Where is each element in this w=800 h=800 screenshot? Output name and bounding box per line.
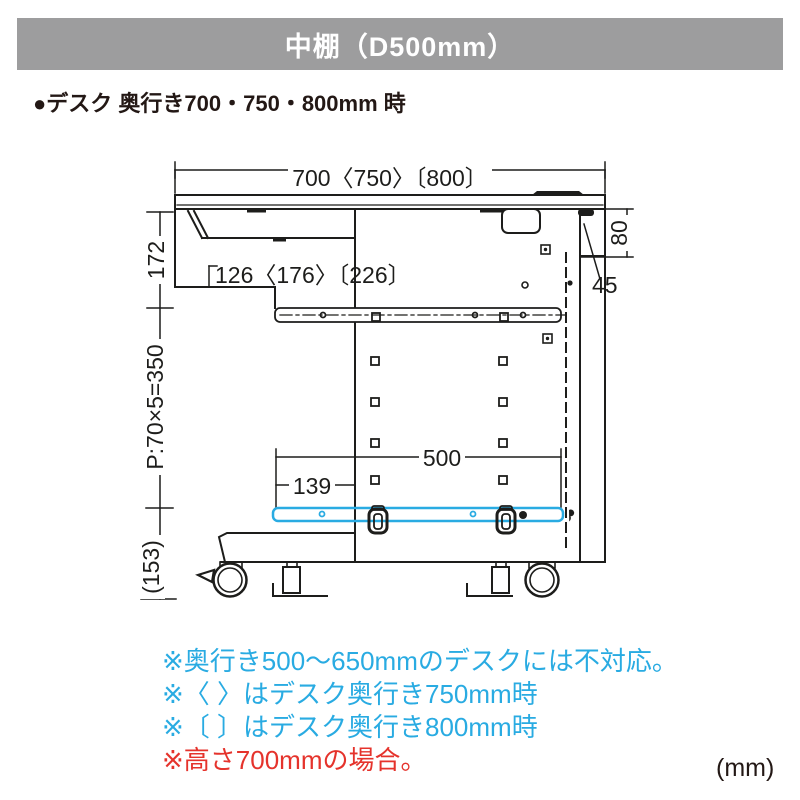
dim-under-top-height: 172 [143,185,169,335]
dim-shelf-front-offset: 139 [282,473,342,500]
dim-back-panel-depth: 45 [592,272,618,299]
adjuster-foot-left [273,567,327,596]
shelf-fasteners [369,506,574,533]
adjuster-foot-right [467,567,512,596]
dim-top-width: 700〈750〉〔800〕 [280,159,500,193]
page: 中棚（D500mm） ●デスク 奥行き700・750・800mm 時 [0,0,800,800]
keyboard-tray [188,211,355,242]
dim-shelf-setback: 126〈176〉〔226〕 [215,256,411,290]
dim-hole-pitch: P:70×5=350 [142,332,168,482]
note-square-brackets-800: ※〔 〕はデスク奥行き800mm時 [162,707,538,744]
base-and-casters [198,533,605,597]
unit-label: (mm) [716,754,774,783]
caster-right [526,564,559,597]
dimension-lines [141,162,633,599]
wing-bolt-mark [569,510,574,522]
note-angle-brackets-750: ※〈 〉はデスク奥行き750mm時 [162,674,538,711]
dim-shelf-depth: 500 [412,445,472,472]
desk-top [175,191,605,213]
caster-left [198,564,247,597]
upper-rail [275,308,566,322]
shelf-clamp-right [497,506,515,533]
note-height-700: ※高さ700mmの場合。 [162,740,426,777]
dim-bottom-clearance: (153) [138,492,164,642]
brake-lever [198,570,214,582]
shelf-clamp-left [369,506,387,533]
note-depth-incompatible: ※奥行き500〜650mmのデスクには不対応。 [162,641,678,678]
